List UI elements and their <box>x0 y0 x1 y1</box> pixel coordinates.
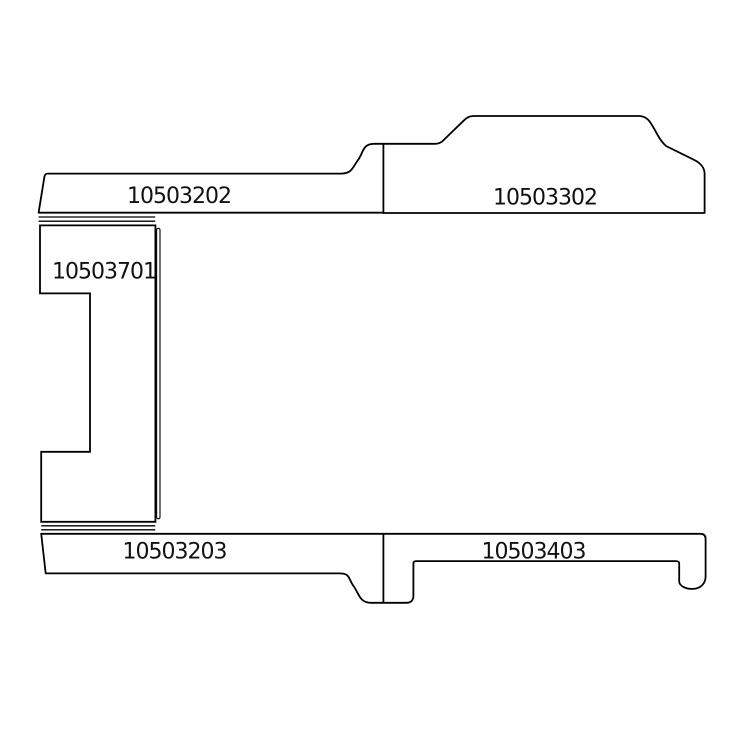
parts-diagram: 10503202 10503302 10503701 10503203 1050… <box>0 0 750 750</box>
part-label-bottom-right-strip: 10503403 <box>482 540 586 565</box>
part-label-top-right-strip: 10503302 <box>493 186 597 211</box>
bottom-edge-band-lines <box>41 526 155 530</box>
panel-edge-strip <box>157 228 160 519</box>
top-edge-band-lines <box>39 217 156 221</box>
diagram-canvas: 10503202 10503302 10503701 10503203 1050… <box>0 0 750 750</box>
part-label-left-panel: 10503701 <box>52 260 156 285</box>
part-label-top-left-strip: 10503202 <box>127 184 231 209</box>
part-label-bottom-left-strip: 10503203 <box>123 540 227 565</box>
